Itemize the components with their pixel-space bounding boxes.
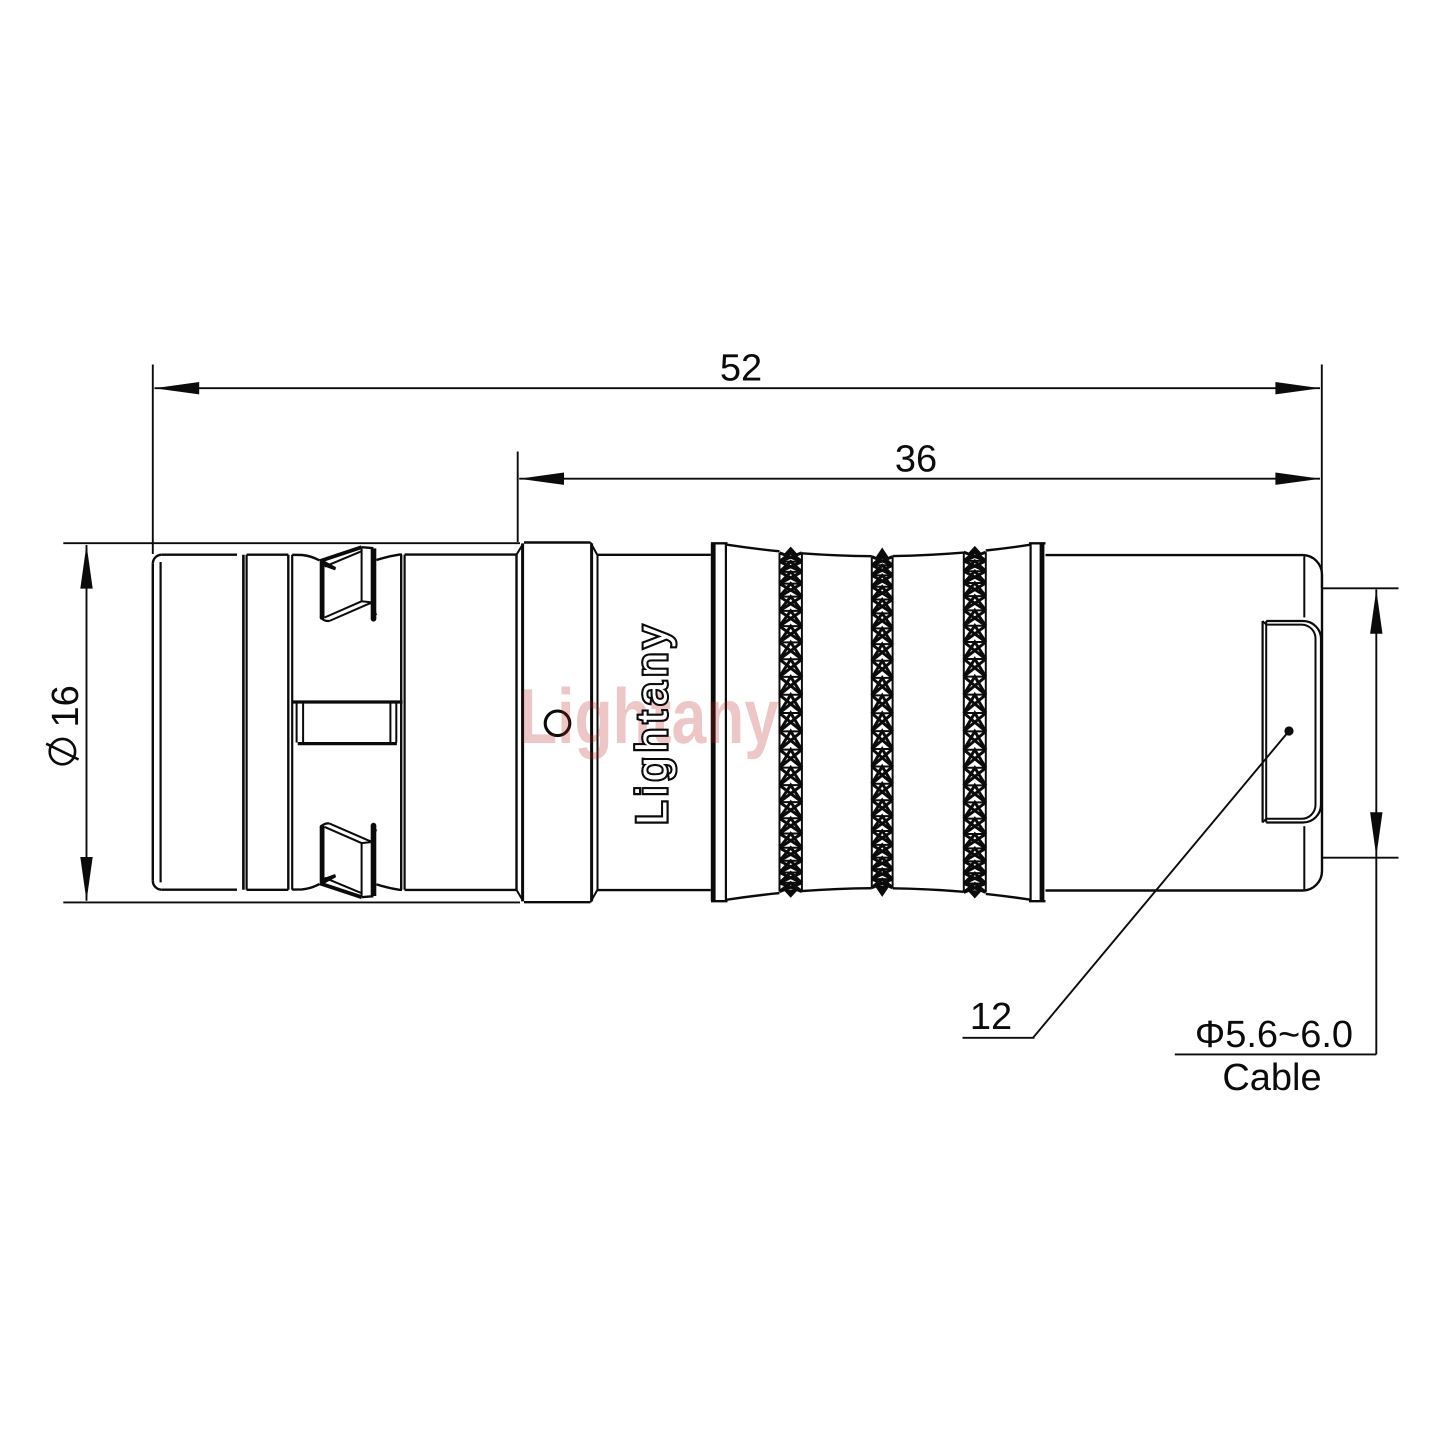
- svg-text:Lightany: Lightany: [629, 621, 677, 825]
- svg-text:Cable: Cable: [1222, 1057, 1321, 1099]
- svg-text:52: 52: [720, 348, 762, 390]
- svg-text:16: 16: [45, 685, 87, 727]
- svg-text:12: 12: [970, 996, 1012, 1038]
- svg-text:Φ5.6~6.0: Φ5.6~6.0: [1195, 1014, 1353, 1056]
- svg-text:36: 36: [895, 438, 937, 480]
